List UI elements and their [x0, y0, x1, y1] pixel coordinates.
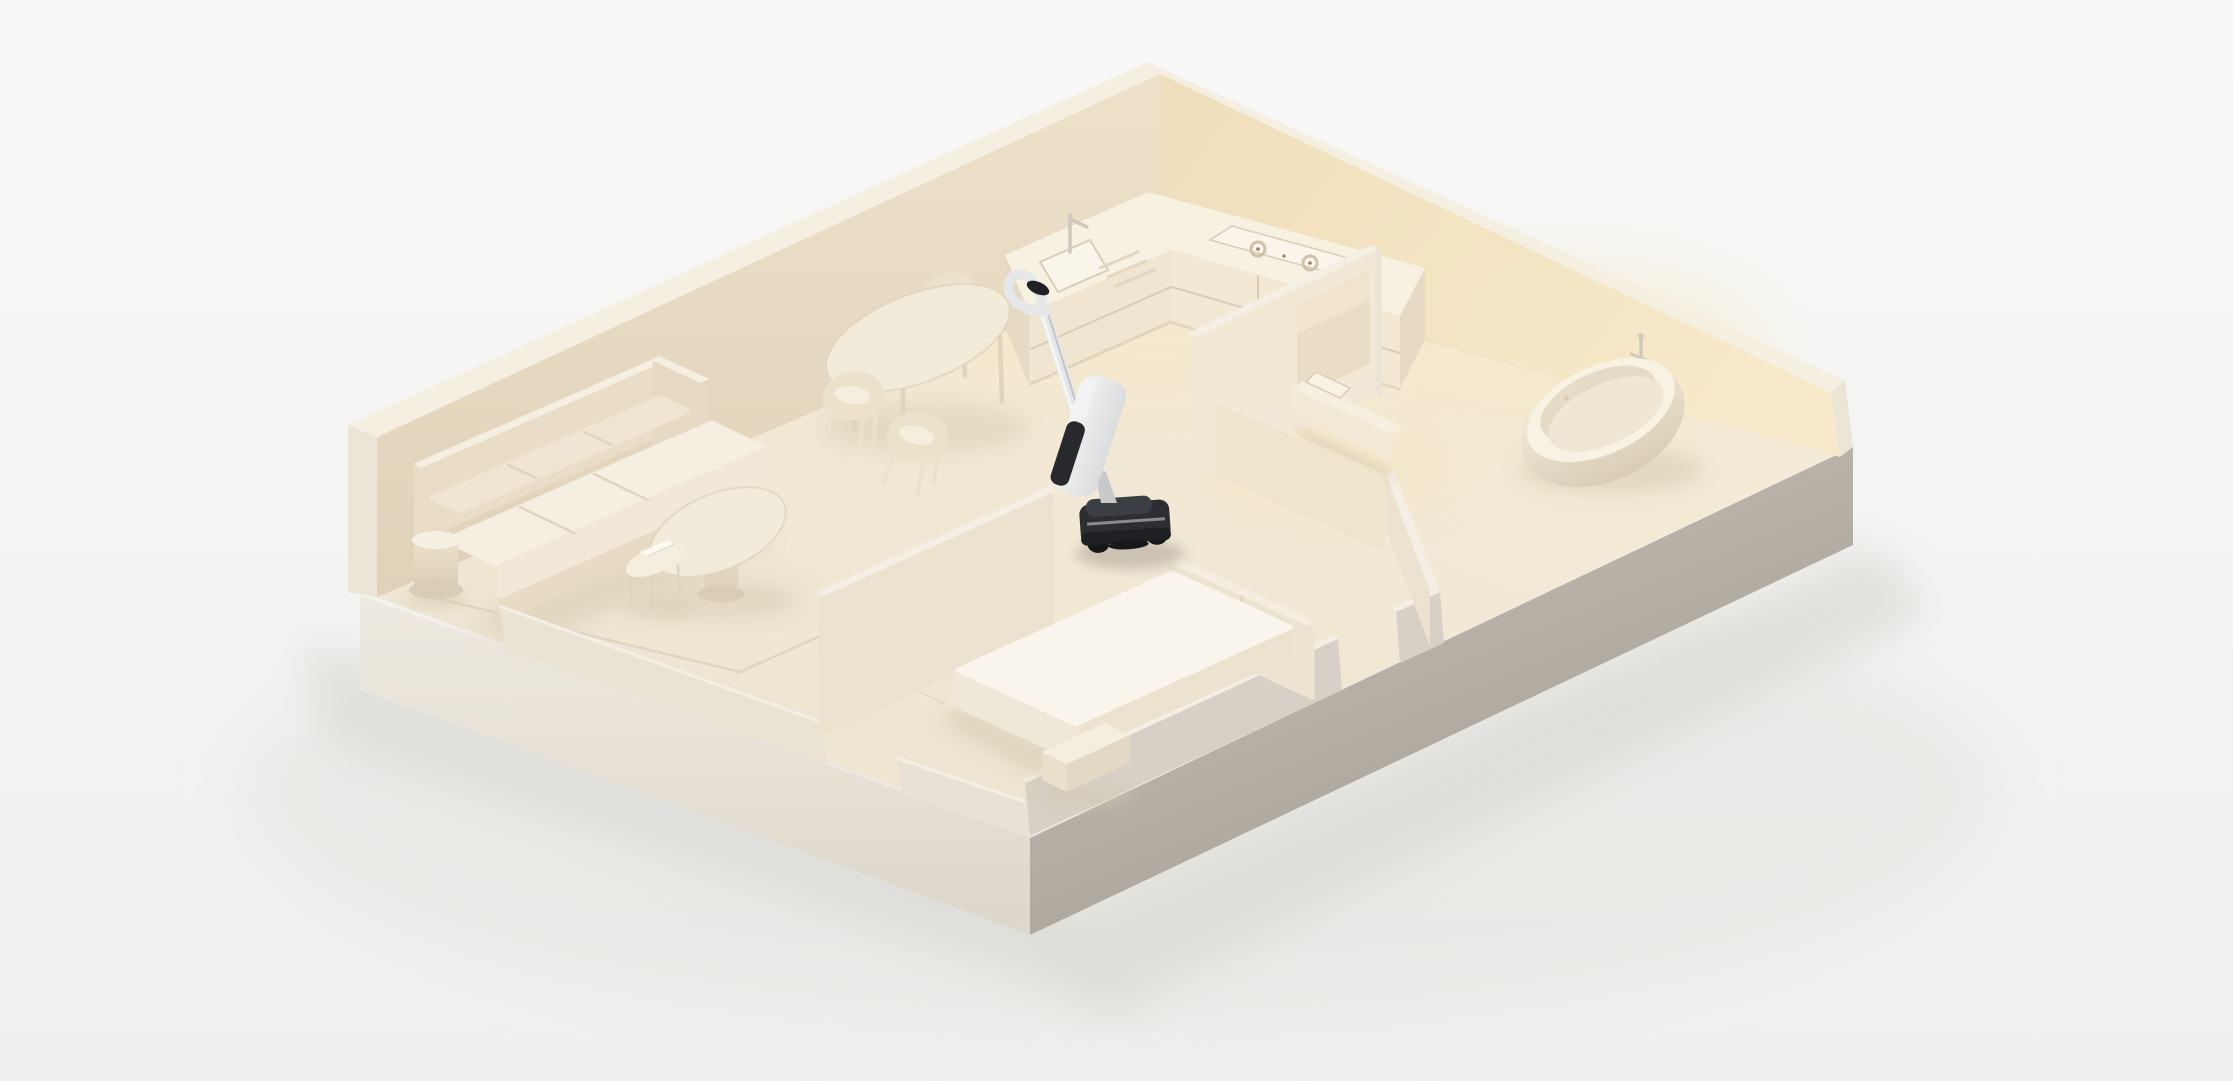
apartment-diorama-illustration [0, 0, 2233, 1081]
wall-end-cap [348, 425, 377, 597]
mirror-wall-end-cap [1375, 248, 1382, 399]
round-side-table [407, 531, 467, 608]
tub-drain [1564, 396, 1569, 401]
side-table-top [412, 531, 460, 549]
product-render-stage [0, 0, 2233, 1081]
